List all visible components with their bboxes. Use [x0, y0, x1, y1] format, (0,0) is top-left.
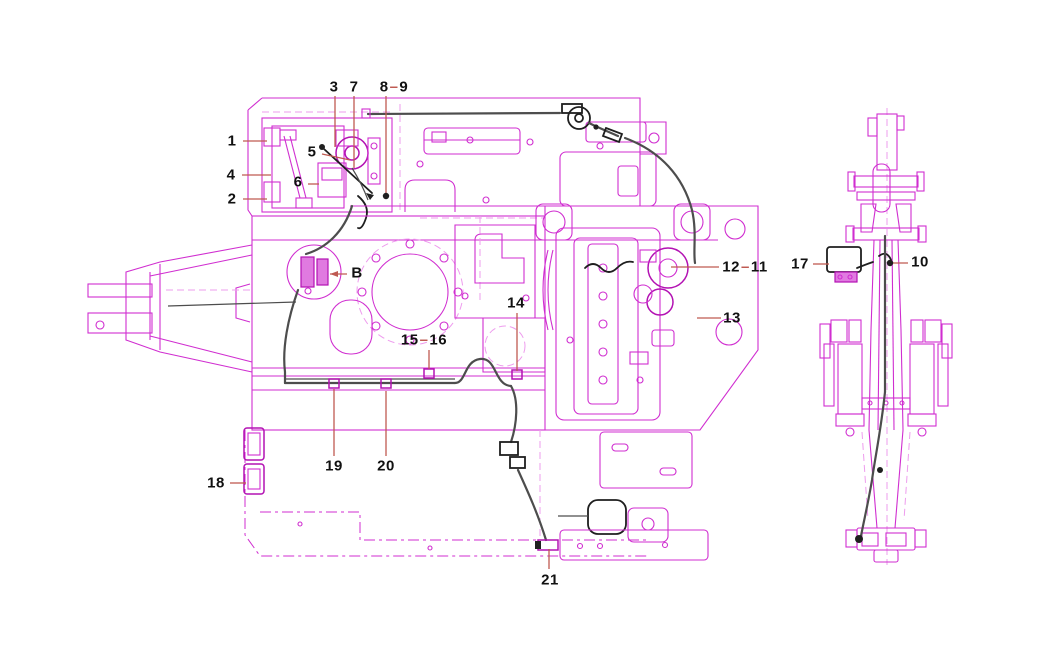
- part-label-3: 3: [330, 80, 339, 95]
- leader-lines-layer: [0, 0, 1044, 655]
- part-label-17: 17: [791, 257, 809, 272]
- part-label-B: B: [351, 266, 362, 281]
- part-label-13: 13: [723, 311, 741, 326]
- part-label-14: 14: [507, 296, 525, 311]
- part-label-19: 19: [325, 459, 343, 474]
- part-label-12-11: 12–11: [722, 260, 767, 275]
- part-label-15-16: 15–16: [401, 333, 447, 348]
- part-label-18: 18: [207, 476, 225, 491]
- part-label-7: 7: [350, 80, 359, 95]
- part-label-20: 20: [377, 459, 395, 474]
- leader-dot-8-9: [383, 193, 389, 199]
- part-label-10: 10: [911, 255, 929, 270]
- leader-dot-10: [887, 260, 893, 266]
- part-label-6: 6: [294, 175, 303, 190]
- diagram-canvas: 142378–956B1415–1612–1113171019201821: [0, 0, 1044, 655]
- part-label-5: 5: [308, 145, 317, 160]
- part-label-21: 21: [541, 573, 559, 588]
- part-label-1: 1: [228, 134, 237, 149]
- leader-line-5: [322, 154, 350, 160]
- leader-arrow-B: [330, 271, 338, 277]
- part-label-2: 2: [228, 192, 237, 207]
- part-label-4: 4: [227, 168, 236, 183]
- part-label-8-9: 8–9: [380, 80, 409, 95]
